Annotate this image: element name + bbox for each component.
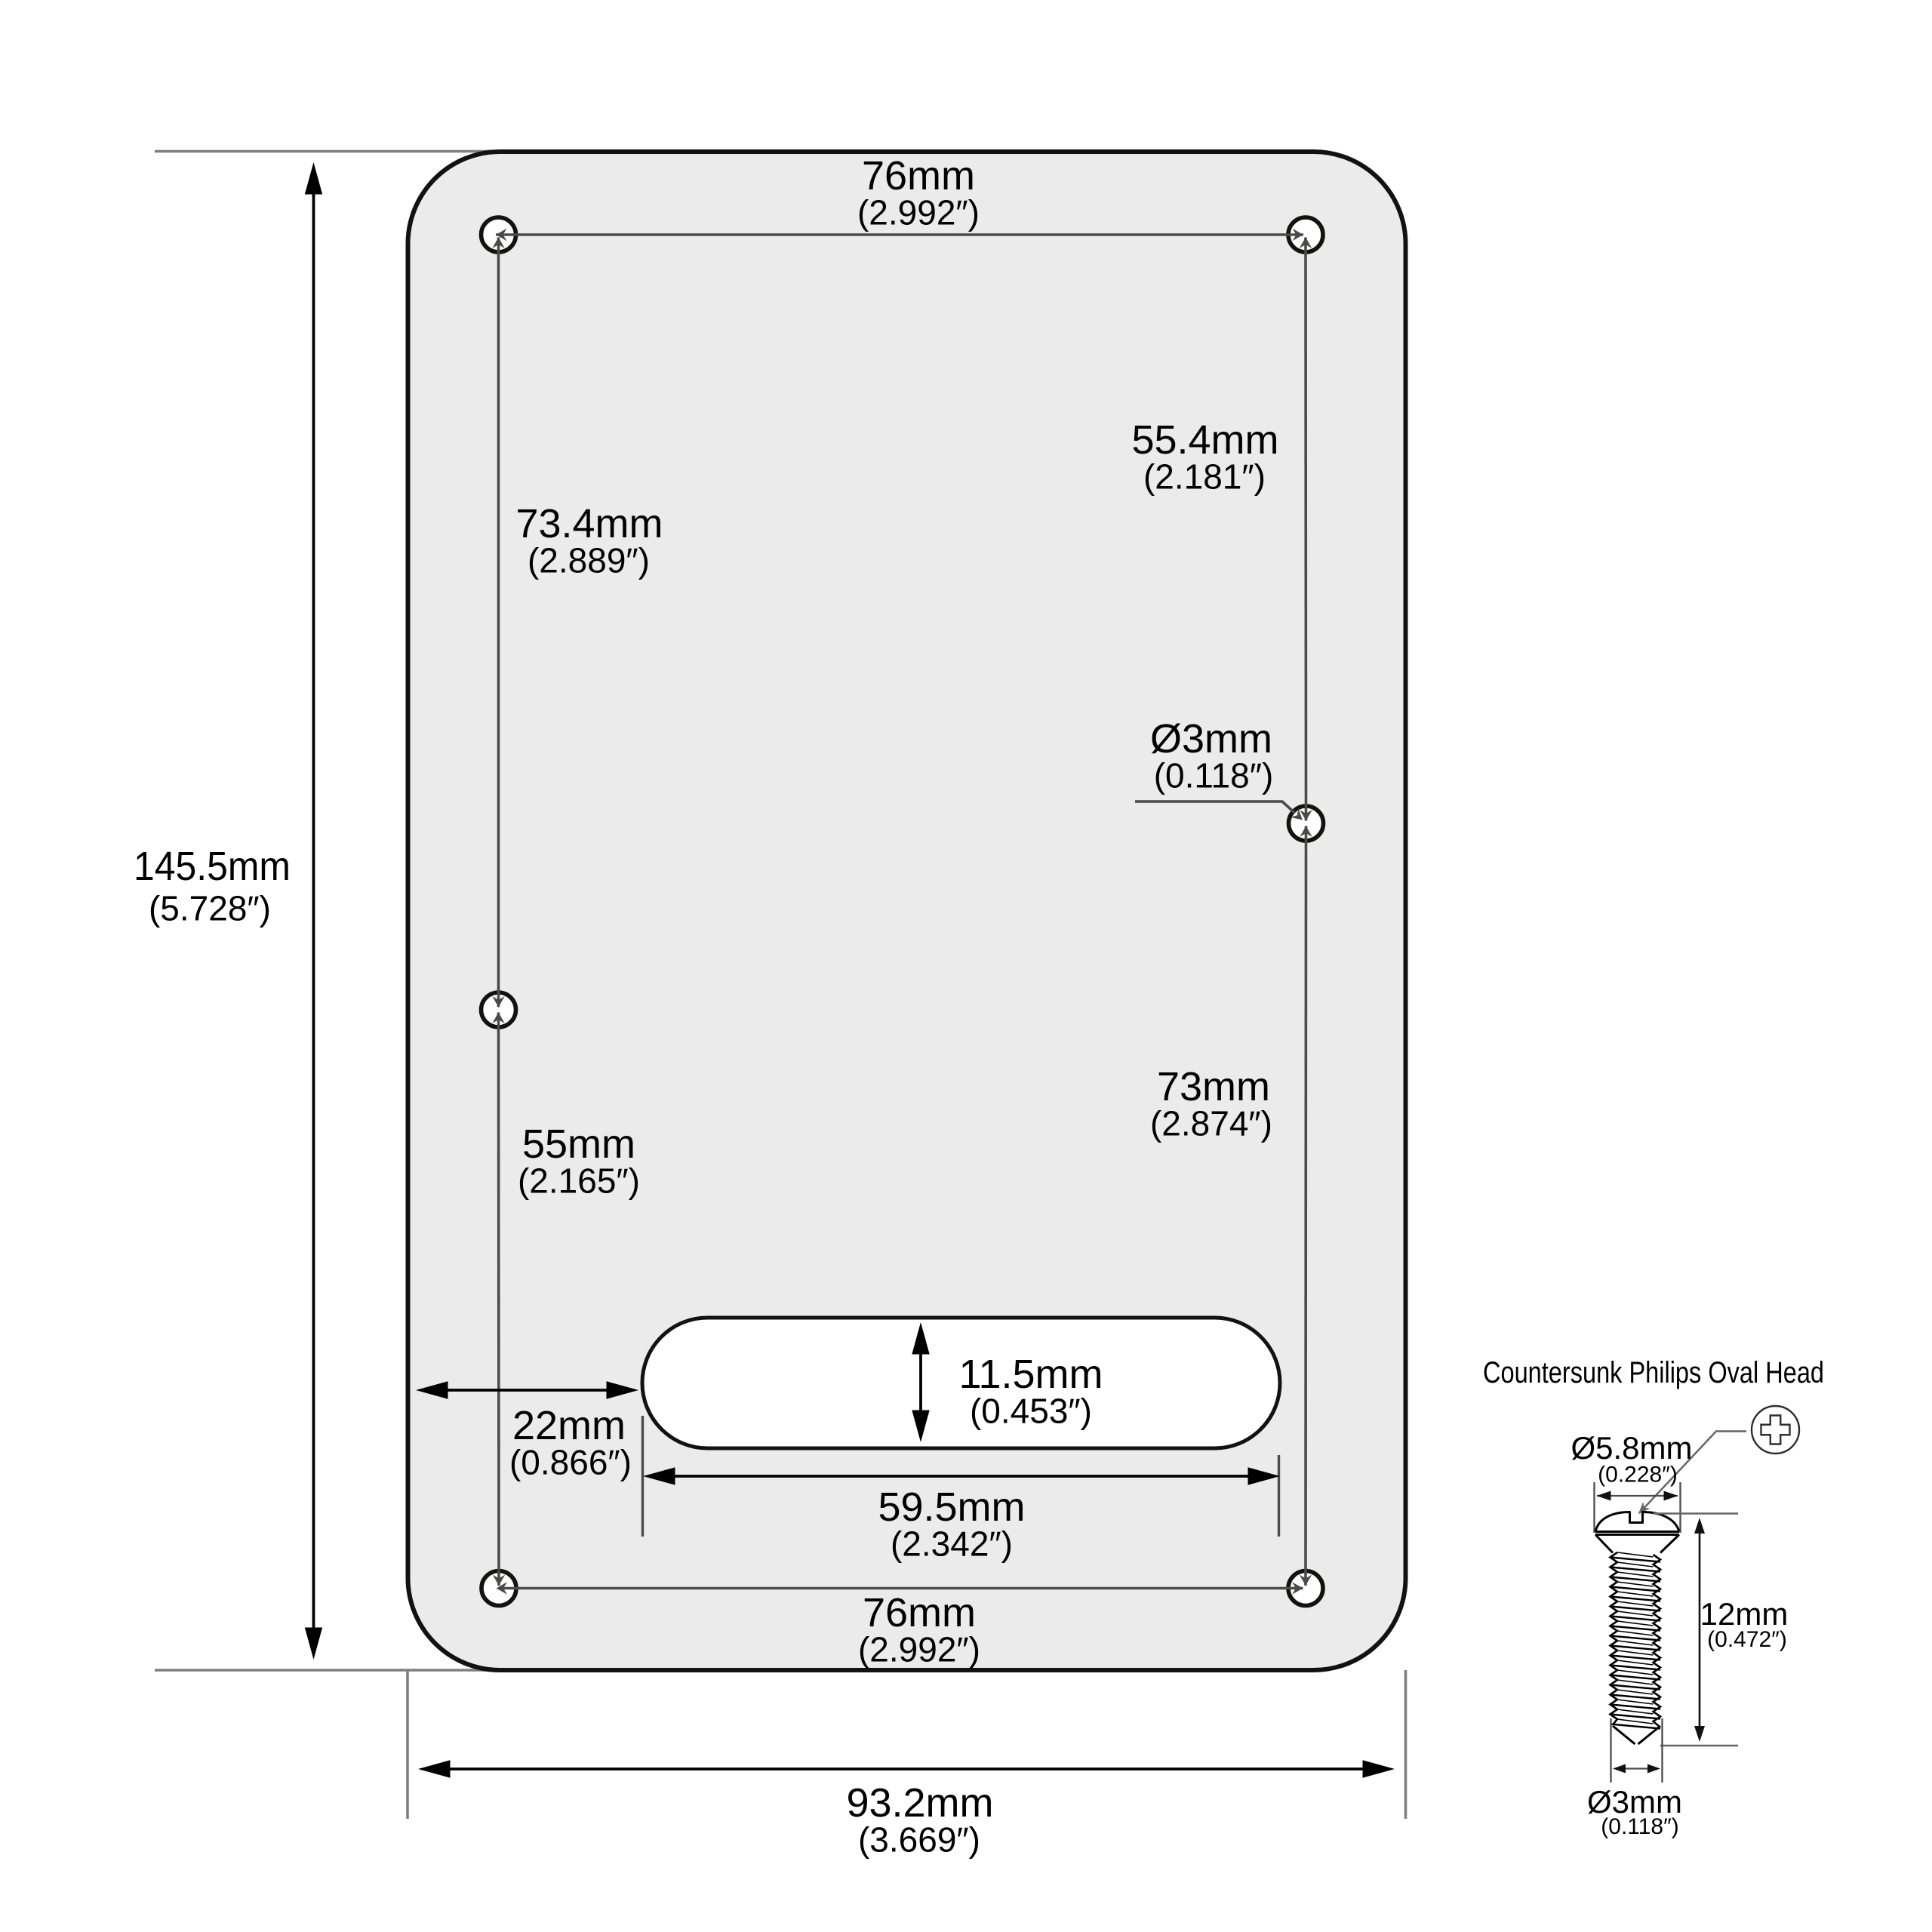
svg-text:Countersunk Philips Oval Head: Countersunk Philips Oval Head [1483,1356,1824,1389]
svg-text:59.5mm: 59.5mm [878,1484,1025,1530]
svg-text:55mm: 55mm [522,1121,635,1167]
svg-text:(0.472″): (0.472″) [1707,1627,1787,1652]
svg-text:(2.992″): (2.992″) [858,1630,980,1669]
svg-text:12mm: 12mm [1700,1596,1789,1632]
svg-text:76mm: 76mm [862,153,975,198]
svg-text:(5.728″): (5.728″) [149,889,271,928]
svg-text:73.4mm: 73.4mm [515,501,663,546]
svg-text:(0.453″): (0.453″) [970,1392,1092,1431]
svg-text:(2.165″): (2.165″) [518,1161,640,1201]
svg-text:76mm: 76mm [863,1590,976,1635]
svg-text:93.2mm: 93.2mm [846,1780,993,1826]
svg-text:Ø5.8mm: Ø5.8mm [1571,1430,1692,1466]
svg-text:(0.118″): (0.118″) [1154,756,1274,795]
svg-text:73mm: 73mm [1157,1064,1270,1109]
svg-text:(2.181″): (2.181″) [1143,457,1266,497]
svg-text:22mm: 22mm [512,1403,626,1448]
svg-text:(0.228″): (0.228″) [1598,1463,1678,1487]
svg-text:11.5mm: 11.5mm [958,1352,1103,1397]
svg-text:Ø3mm: Ø3mm [1150,716,1272,761]
svg-text:145.5mm: 145.5mm [134,844,291,889]
svg-text:55.4mm: 55.4mm [1131,417,1278,463]
svg-text:(2.342″): (2.342″) [891,1524,1013,1564]
svg-text:(0.866″): (0.866″) [509,1443,632,1482]
svg-text:(3.669″): (3.669″) [858,1820,980,1860]
svg-text:(2.874″): (2.874″) [1150,1104,1272,1143]
svg-text:(2.992″): (2.992″) [857,193,980,232]
svg-text:(0.118″): (0.118″) [1601,1814,1678,1839]
svg-text:(2.889″): (2.889″) [528,541,650,580]
